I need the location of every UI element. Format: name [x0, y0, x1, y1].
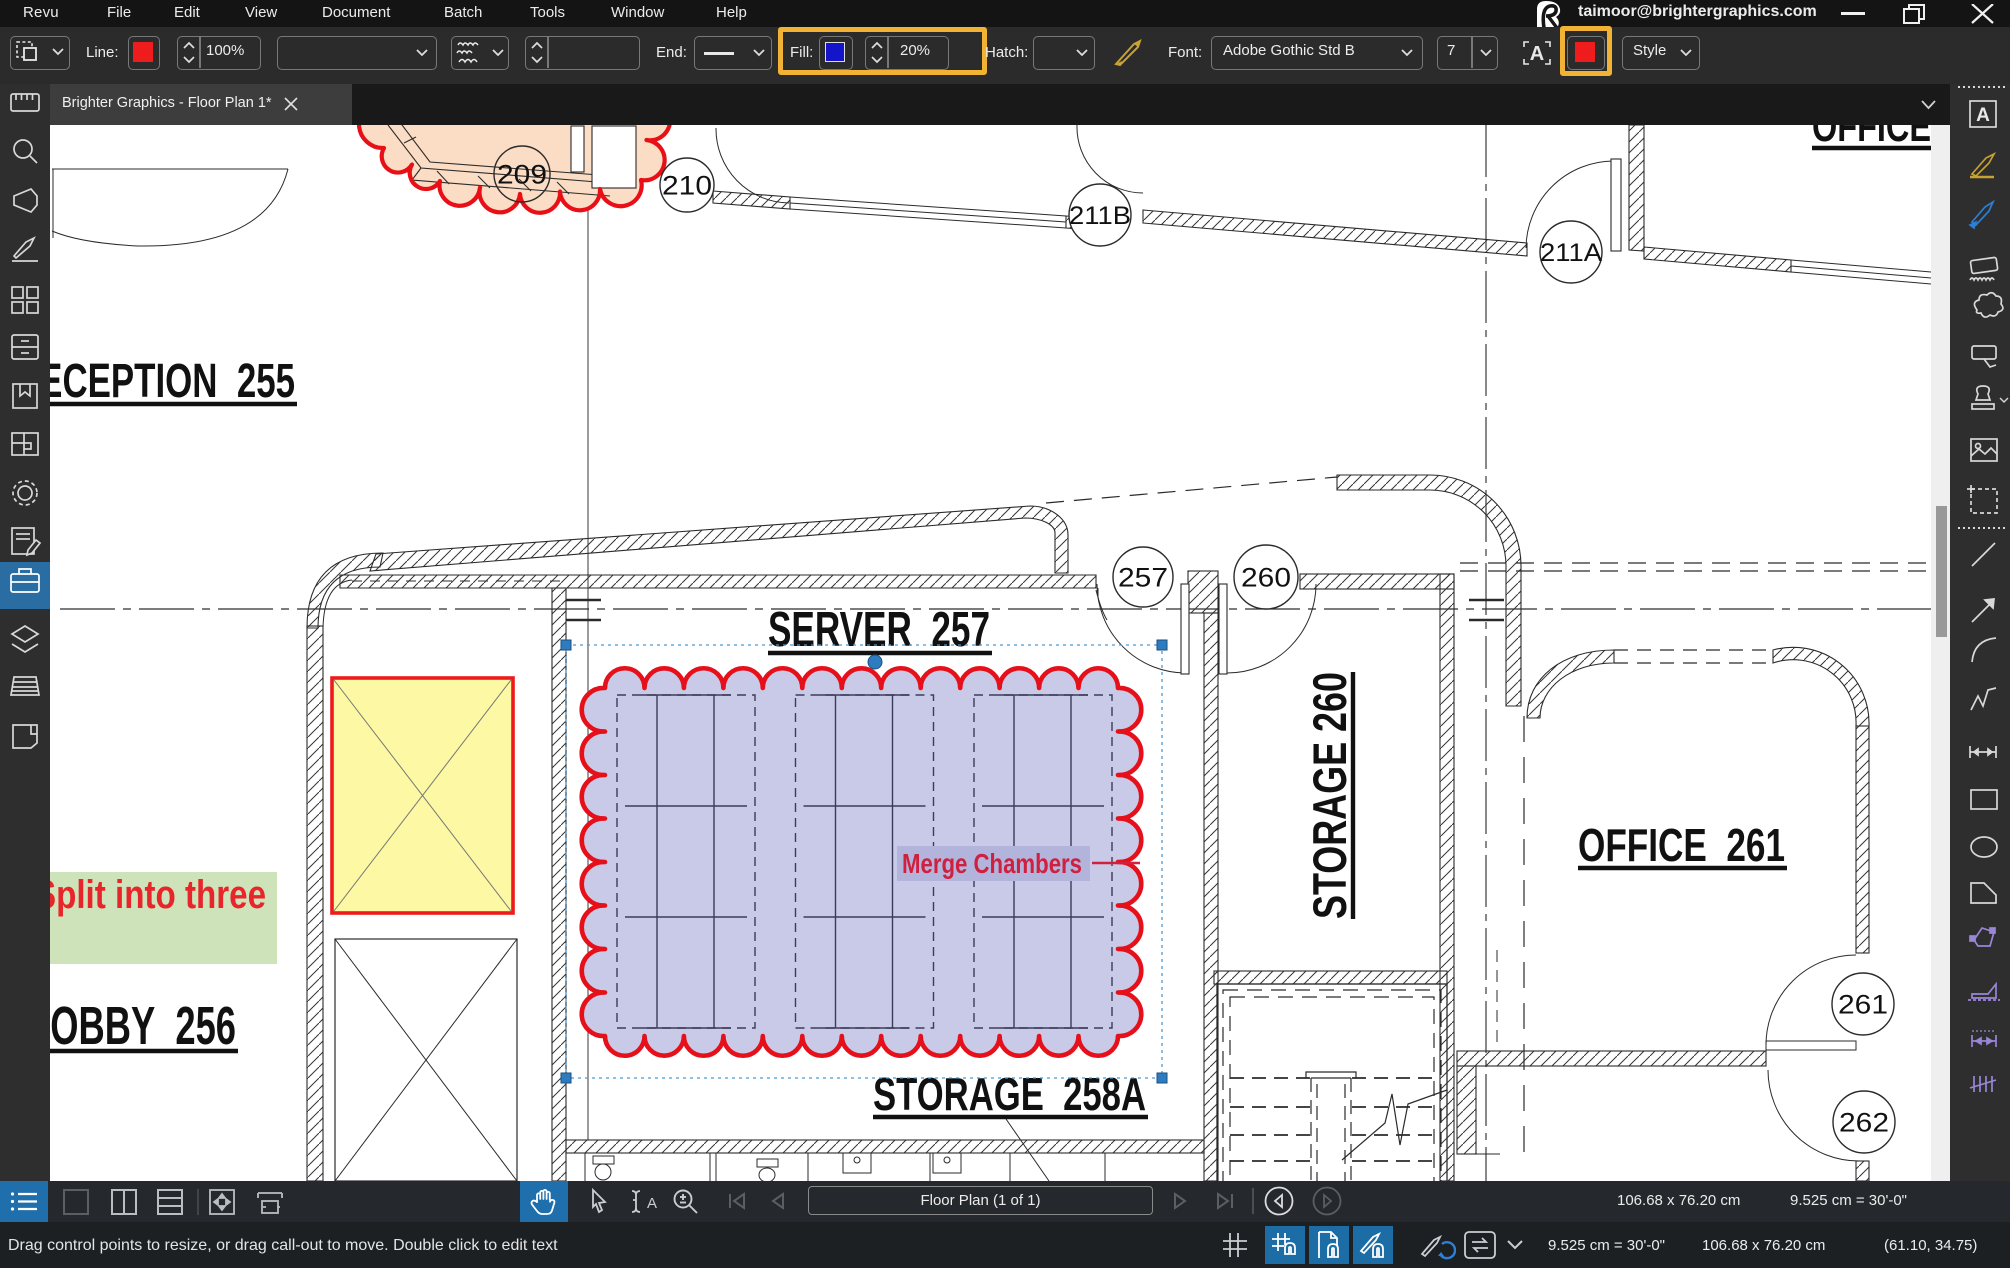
svg-text:261: 261: [1838, 990, 1888, 1020]
svg-text:RECEPTION 255: RECEPTION 255: [50, 355, 295, 408]
svg-text:262: 262: [1839, 1108, 1889, 1138]
svg-text:210: 210: [662, 171, 712, 201]
svg-text:A: A: [1976, 105, 1990, 126]
svg-text:Merge Chambers: Merge Chambers: [902, 848, 1082, 879]
svg-text:257: 257: [1118, 563, 1168, 593]
svg-text:OFFICE 261: OFFICE 261: [1578, 819, 1785, 871]
svg-text:LOBBY 256: LOBBY 256: [50, 996, 236, 1056]
svg-text:211B: 211B: [1069, 202, 1131, 230]
svg-text:SERVER 257: SERVER 257: [768, 603, 990, 657]
svg-text:209: 209: [497, 160, 547, 190]
svg-text:A: A: [1530, 43, 1544, 65]
svg-text:Split into three: Split into three: [50, 873, 266, 917]
svg-text:260: 260: [1241, 563, 1291, 593]
svg-text:A: A: [647, 1195, 657, 1212]
svg-text:STORAGE 258A: STORAGE 258A: [873, 1068, 1146, 1120]
svg-text:211A: 211A: [1540, 239, 1602, 267]
svg-text:STORAGE 260: STORAGE 260: [1303, 672, 1356, 919]
